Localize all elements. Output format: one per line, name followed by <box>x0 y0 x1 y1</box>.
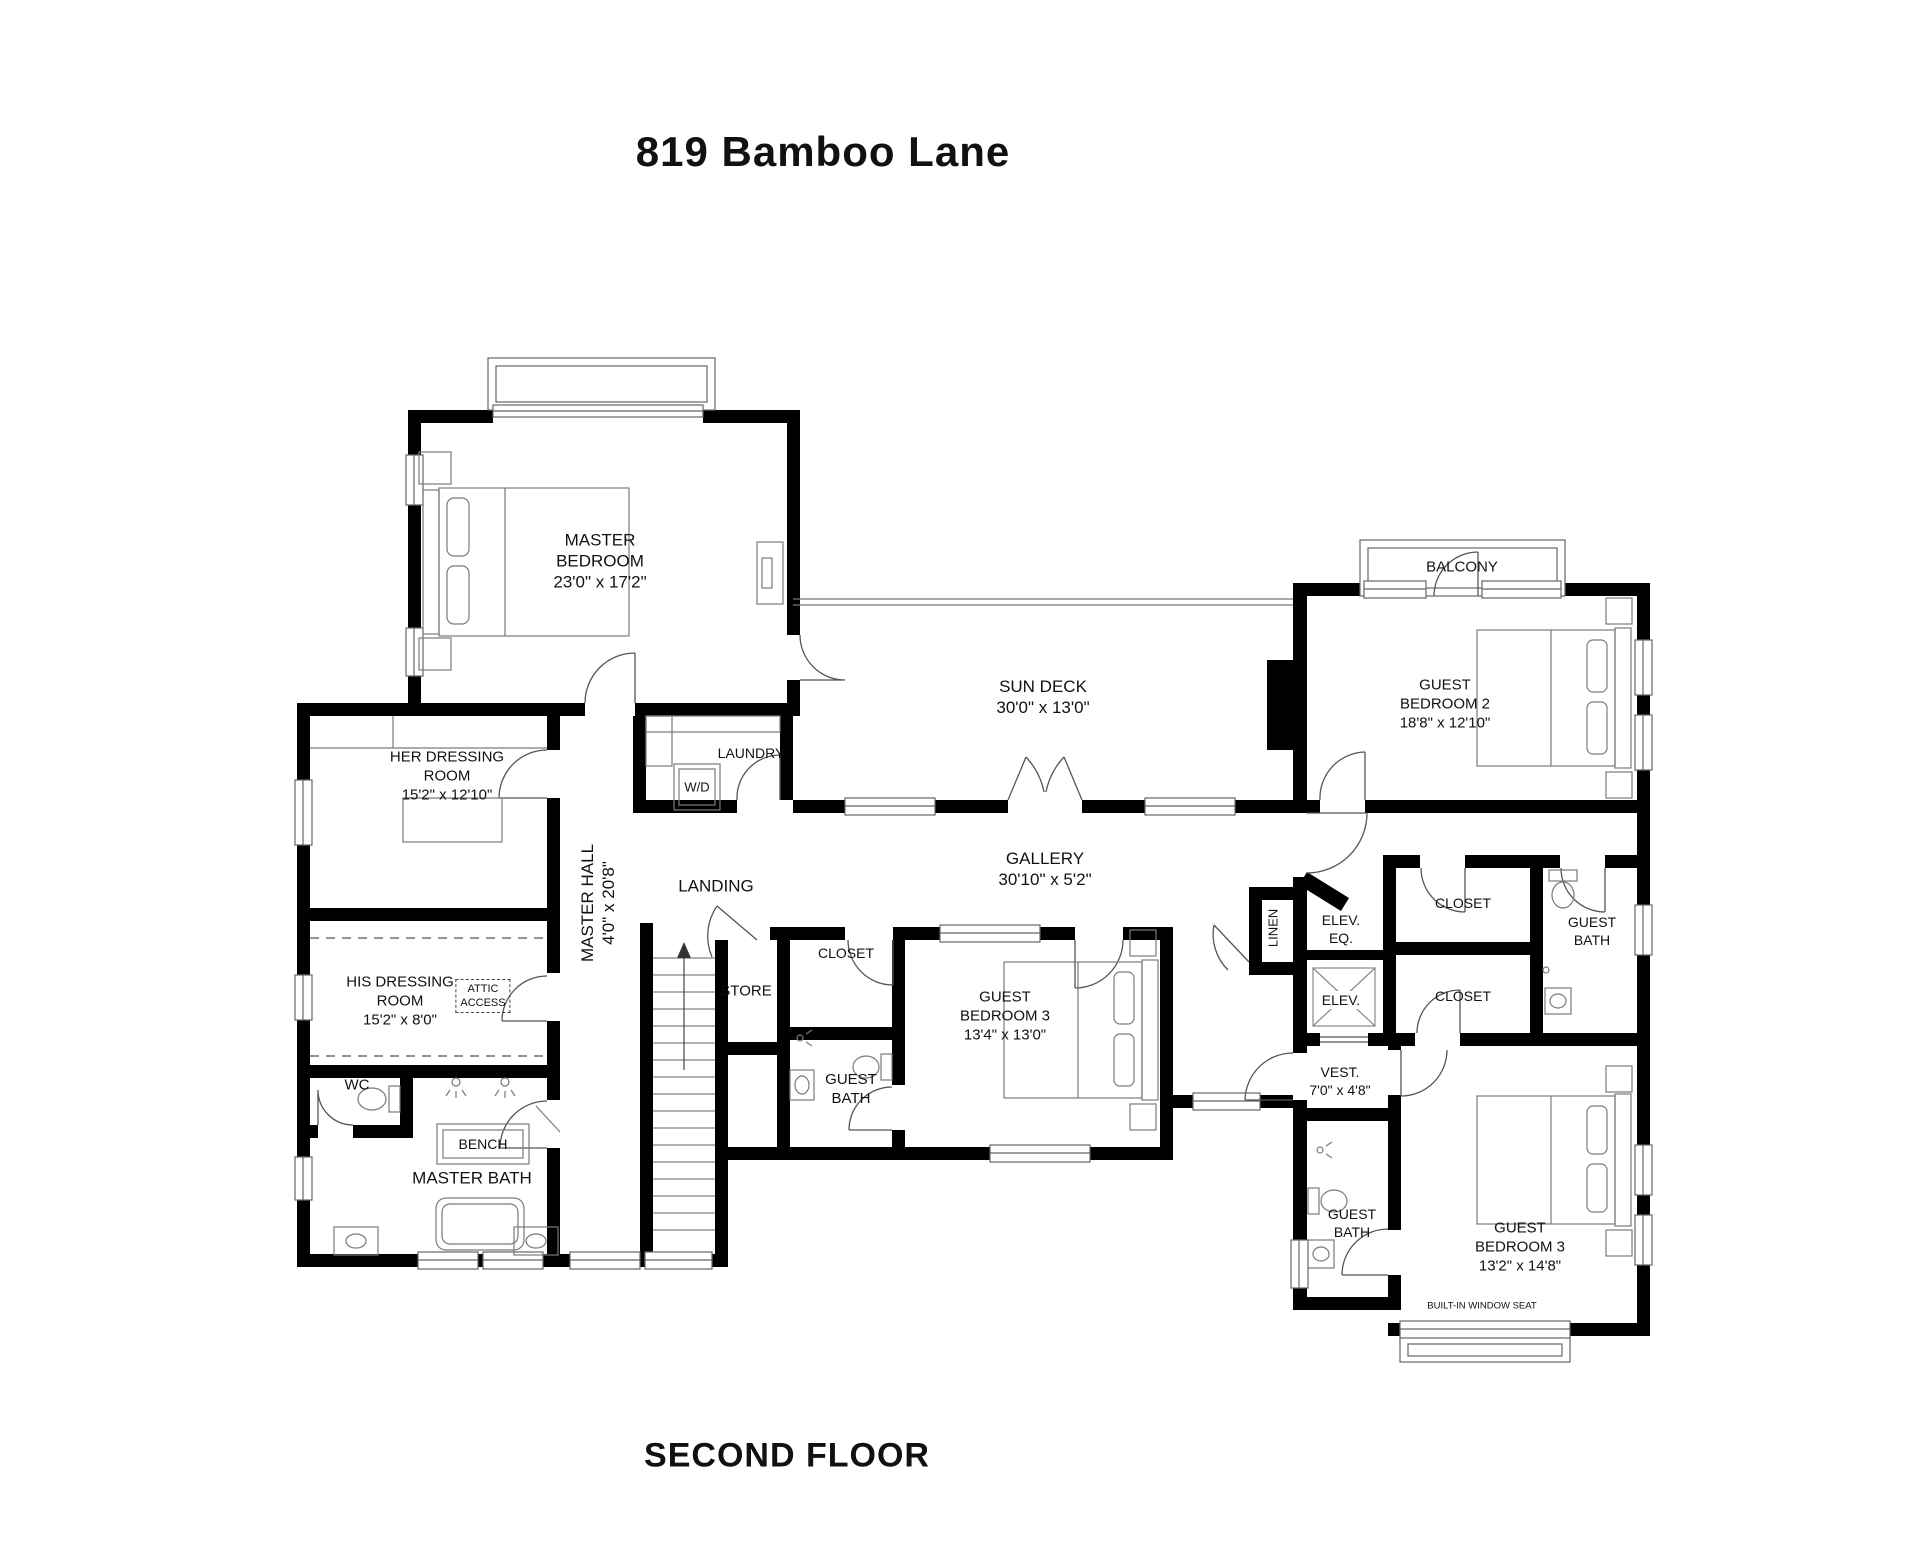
floor-plan-page: 819 Bamboo Lane MASTER BEDROOM 23'0" x 1… <box>0 0 1920 1543</box>
room-label-wc: WC <box>345 1076 370 1095</box>
room-label-gallery: GALLERY 30'10" x 5'2" <box>998 848 1091 890</box>
room-label-landing: LANDING <box>678 876 754 897</box>
dresser-icon <box>757 542 783 604</box>
balcony-label: BALCONY <box>1426 558 1498 577</box>
elev-eq-label: ELEV. EQ. <box>1322 911 1360 947</box>
toilet-icon <box>1549 870 1577 908</box>
room-label-guest-bath-br: GUEST BATH <box>1328 1205 1376 1241</box>
room-label-guest-bath-right: GUEST BATH <box>1568 913 1616 949</box>
room-label-vest: VEST. 7'0" x 4'8" <box>1309 1063 1370 1099</box>
room-label-master-bedroom: MASTER BEDROOM 23'0" x 17'2" <box>553 530 646 593</box>
stairs-icon <box>653 942 715 1230</box>
page-title: 819 Bamboo Lane <box>636 128 1010 176</box>
windows <box>295 358 1652 1362</box>
sun-deck-railing <box>793 599 1293 605</box>
room-label-his-dressing-room: HIS DRESSING ROOM 15'2" x 8'0" <box>346 973 454 1030</box>
bench-label: BENCH <box>458 1135 507 1153</box>
washer-dryer-label: W/D <box>684 779 709 796</box>
sink-icon <box>1543 967 1571 1014</box>
room-label-guest-bedroom-3-mid: GUEST BEDROOM 3 13'4" x 13'0" <box>960 988 1050 1045</box>
room-label-guest-bedroom-3-right: GUEST BEDROOM 3 13'2" x 14'8" <box>1475 1219 1565 1276</box>
room-label-sun-deck: SUN DECK 30'0" x 13'0" <box>996 676 1089 718</box>
attic-access-label: ATTIC ACCESS <box>455 979 510 1013</box>
room-label-guest-bedroom-2: GUEST BEDROOM 2 18'8" x 12'10" <box>1400 676 1491 733</box>
sink-icon <box>790 1030 814 1100</box>
room-label-her-dressing-room: HER DRESSING ROOM 15'2" x 12'10" <box>390 748 504 805</box>
room-label-closet-right-upper: CLOSET <box>1435 894 1491 912</box>
floor-label: SECOND FLOOR <box>644 1437 930 1476</box>
window-seat-label: BUILT-IN WINDOW SEAT <box>1427 1301 1536 1312</box>
walls <box>297 410 1650 1336</box>
room-label-master-bath: MASTER BATH <box>412 1168 532 1189</box>
bathtub-icon <box>436 1198 524 1250</box>
room-label-laundry: LAUNDRY <box>718 744 785 762</box>
linen-label: LINEN <box>1265 909 1282 947</box>
room-label-store: STORE <box>720 982 771 1001</box>
elev-label: ELEV. <box>1319 991 1363 1009</box>
room-label-closet-mid: CLOSET <box>818 944 874 962</box>
room-label-closet-right-lower: CLOSET <box>1435 987 1491 1005</box>
floor-plan-drawing <box>0 0 1920 1543</box>
room-label-guest-bath-mid: GUEST BATH <box>825 1070 877 1108</box>
bed-icon <box>1477 598 1632 798</box>
room-label-master-hall: MASTER HALL 4'0" x 20'8" <box>577 844 619 962</box>
